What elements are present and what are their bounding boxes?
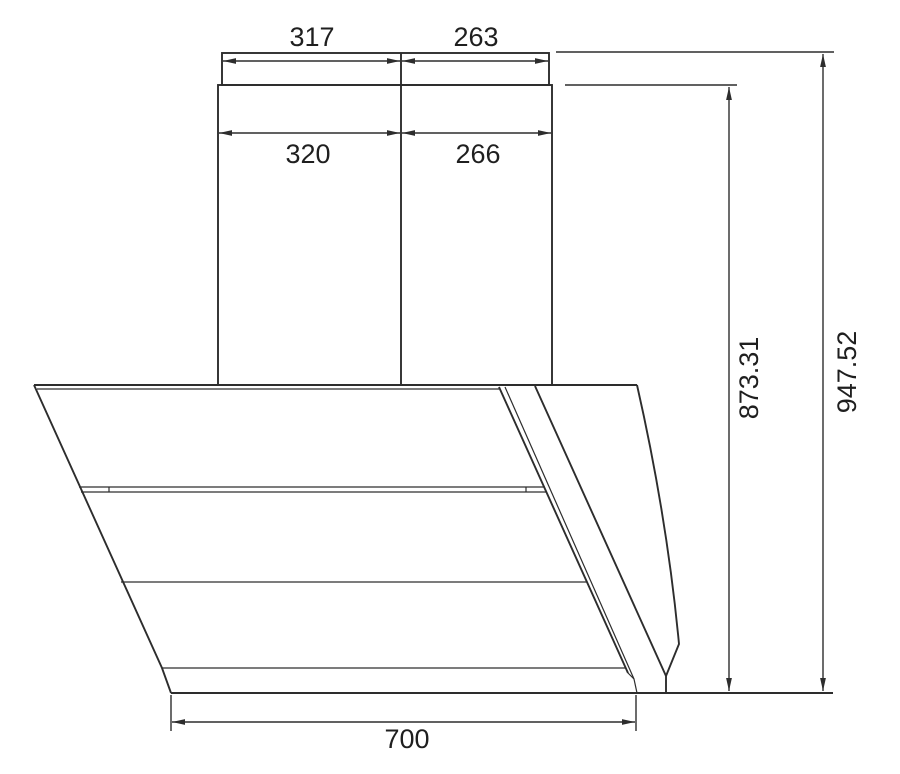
hood-glass-right-edge-inner bbox=[505, 387, 634, 679]
dim-label-overall-height: 947.52 bbox=[832, 331, 862, 414]
dim-label-chimney-base-right: 266 bbox=[455, 139, 500, 169]
dim-label-chimney-top-left: 317 bbox=[289, 22, 334, 52]
cooker-hood-outline bbox=[34, 53, 833, 693]
dim-label-hood-height: 873.31 bbox=[734, 337, 764, 420]
hood-glass-right-edge-outer bbox=[499, 387, 628, 673]
hood-side-panel-outer-edge bbox=[637, 385, 679, 676]
dim-label-hood-bottom-width: 700 bbox=[384, 724, 429, 754]
dimension-annotations: 317 263 320 266 873.31 947.52 700 bbox=[171, 22, 862, 754]
dim-label-chimney-base-left: 320 bbox=[285, 139, 330, 169]
hood-left-edge bbox=[34, 385, 171, 693]
technical-drawing-canvas: 317 263 320 266 873.31 947.52 700 bbox=[0, 0, 900, 774]
dim-label-chimney-top-right: 263 bbox=[453, 22, 498, 52]
chimney-upper-section bbox=[222, 53, 549, 85]
cooker-hood-dimension-drawing: 317 263 320 266 873.31 947.52 700 bbox=[0, 0, 900, 774]
chimney-lower-section bbox=[218, 85, 552, 385]
